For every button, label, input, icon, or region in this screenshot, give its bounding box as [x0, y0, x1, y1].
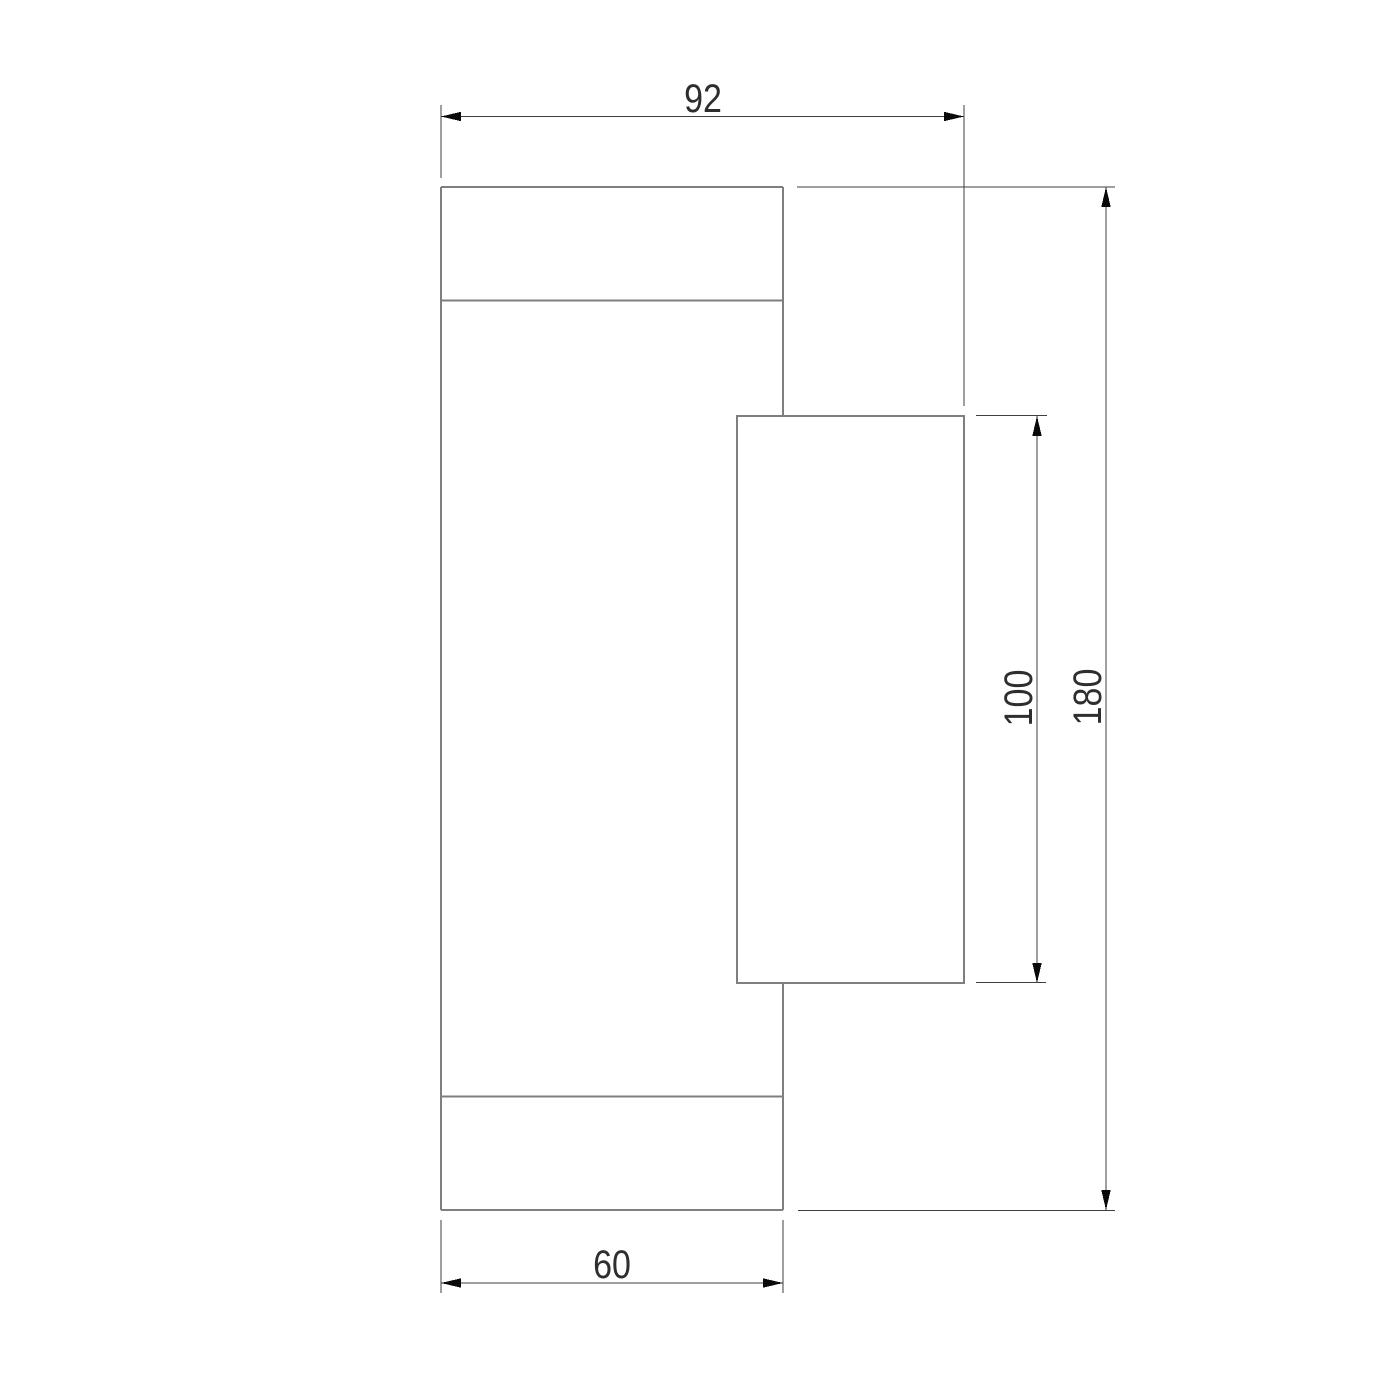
- dim-100-label: 100: [995, 670, 1040, 727]
- arrowhead-left-icon: [441, 1278, 461, 1287]
- dimension-top-width: 92: [441, 75, 964, 406]
- front-tube-outline: [737, 416, 964, 983]
- dimension-bottom-width: 60: [441, 1220, 783, 1293]
- arrowhead-down-icon: [1032, 963, 1041, 983]
- arrowhead-right-icon: [944, 112, 964, 121]
- arrowhead-up-icon: [1032, 416, 1041, 436]
- dim-60-label: 60: [593, 1241, 631, 1286]
- dim-92-label: 92: [684, 75, 722, 120]
- arrowhead-left-icon: [441, 112, 461, 121]
- arrowhead-right-icon: [763, 1278, 783, 1287]
- dimension-overall-height: 180: [797, 187, 1115, 1211]
- dim-180-label: 180: [1064, 669, 1109, 726]
- dimension-drawing: 92 60 100 180: [0, 0, 1400, 1400]
- arrowhead-down-icon: [1101, 1190, 1110, 1210]
- lamp-outline: [441, 187, 964, 1210]
- arrowhead-up-icon: [1101, 187, 1110, 207]
- dimension-tube-height: 100: [976, 416, 1047, 984]
- drawing-canvas: 92 60 100 180: [0, 0, 1400, 1400]
